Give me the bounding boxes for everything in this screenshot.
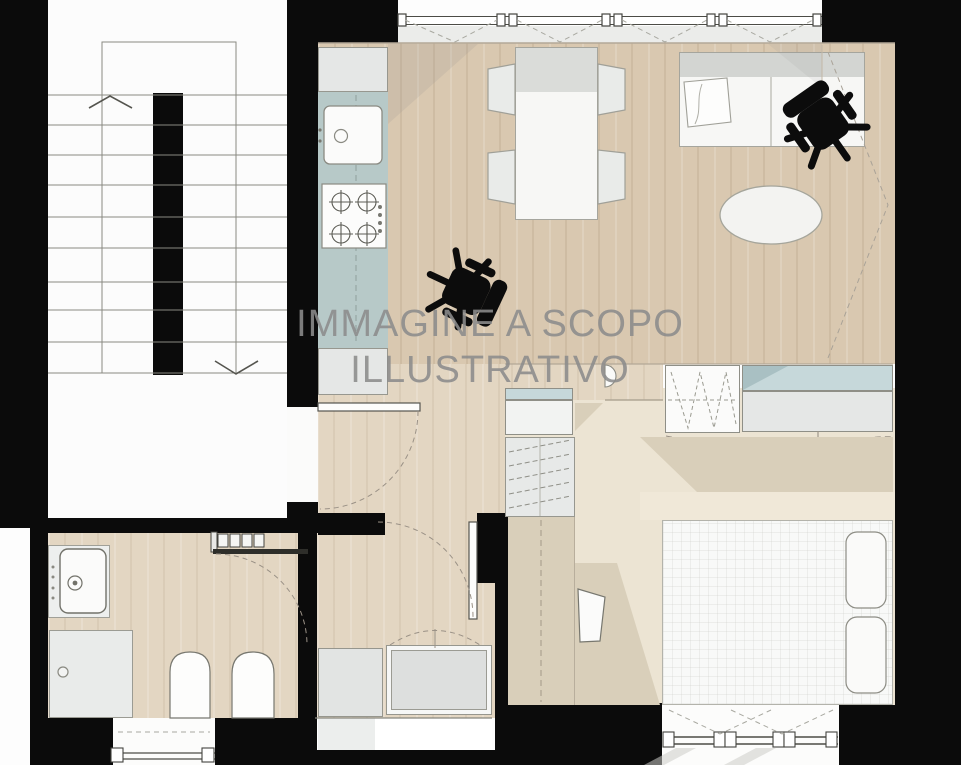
bedroom-window (644, 710, 838, 765)
storage-door-dashes (390, 629, 480, 648)
bedroom-floor-highlight (640, 492, 895, 520)
toilet (170, 652, 210, 718)
watermark-line-1: IMMAGINE A SCOPO (280, 301, 700, 347)
north-window-mullions (398, 14, 821, 26)
dining-chair (488, 150, 515, 204)
washbasin (52, 549, 107, 613)
gas-hob (322, 184, 386, 248)
window-light-wedge-right (768, 44, 822, 88)
entrance-door (318, 403, 420, 509)
bathroom-window (111, 732, 215, 762)
kitchen-sink (318, 106, 382, 164)
bedroom-floor-pattern (575, 403, 893, 705)
dining-chair (488, 64, 515, 115)
shower-drain (58, 667, 68, 677)
stair-top-landing (102, 42, 236, 95)
bedroom-door (378, 522, 477, 619)
pillow (846, 617, 886, 693)
bedroom-side-table (578, 589, 605, 642)
stair-steps (48, 42, 287, 373)
window-light-wedge (388, 44, 478, 124)
bathroom-door (211, 532, 308, 645)
wardrobe-top-shade (743, 366, 788, 390)
round-rug (720, 186, 822, 244)
watermark-line-2: ILLUSTRATIVO (280, 347, 700, 393)
stair-arrow-up (89, 96, 132, 108)
dining-chair (598, 150, 625, 204)
stair-direction-arrows (89, 96, 258, 374)
bidet (232, 652, 274, 718)
floor-plan: IMMAGINE A SCOPO ILLUSTRATIVO (0, 0, 961, 765)
dining-chair (598, 64, 625, 115)
office-chair (770, 71, 878, 180)
watermark: IMMAGINE A SCOPO ILLUSTRATIVO (280, 301, 700, 393)
sofa-blanket (684, 78, 731, 127)
dining-chairs (488, 64, 625, 204)
pillow (846, 532, 886, 608)
